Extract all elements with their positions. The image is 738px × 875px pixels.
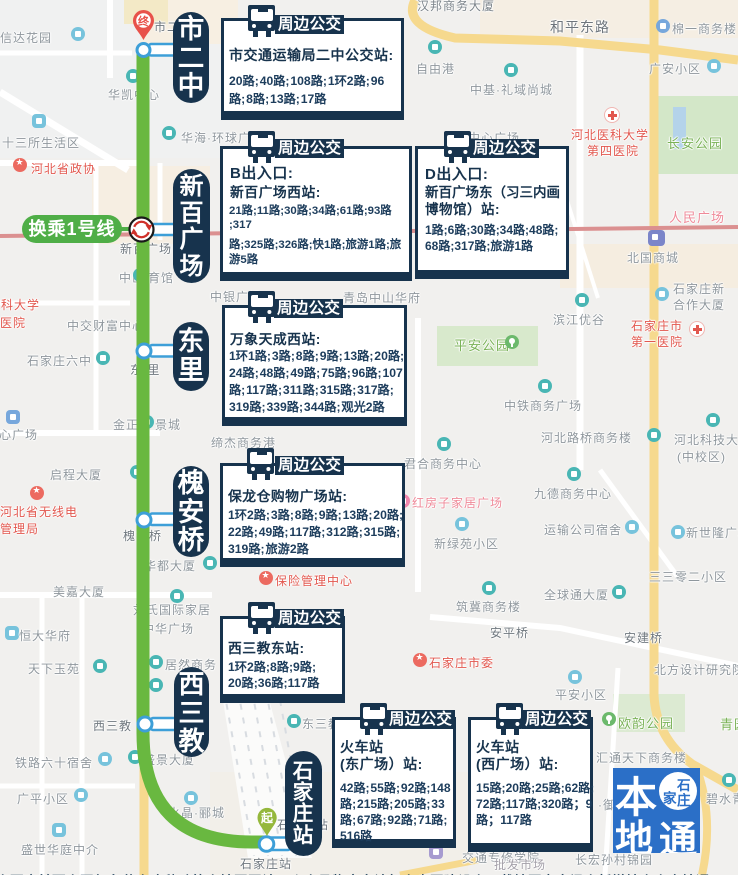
svg-text:起: 起: [260, 810, 274, 825]
svg-text:终: 终: [138, 14, 150, 28]
